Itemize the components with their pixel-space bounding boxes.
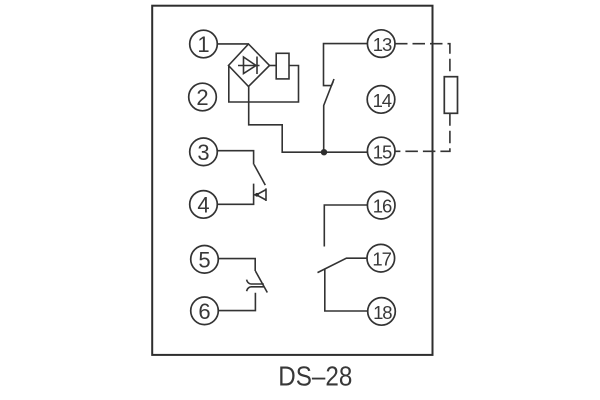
svg-text:16: 16 xyxy=(373,196,392,217)
svg-text:4: 4 xyxy=(197,192,209,217)
svg-text:14: 14 xyxy=(373,90,392,111)
svg-text:DS–28: DS–28 xyxy=(278,360,352,391)
svg-text:3: 3 xyxy=(197,140,209,165)
svg-text:18: 18 xyxy=(373,302,392,323)
svg-text:6: 6 xyxy=(198,299,210,324)
svg-text:5: 5 xyxy=(198,247,210,272)
svg-text:1: 1 xyxy=(197,32,209,57)
svg-text:13: 13 xyxy=(373,34,392,55)
svg-text:17: 17 xyxy=(372,249,391,270)
svg-text:2: 2 xyxy=(196,85,208,110)
svg-text:15: 15 xyxy=(373,141,392,162)
